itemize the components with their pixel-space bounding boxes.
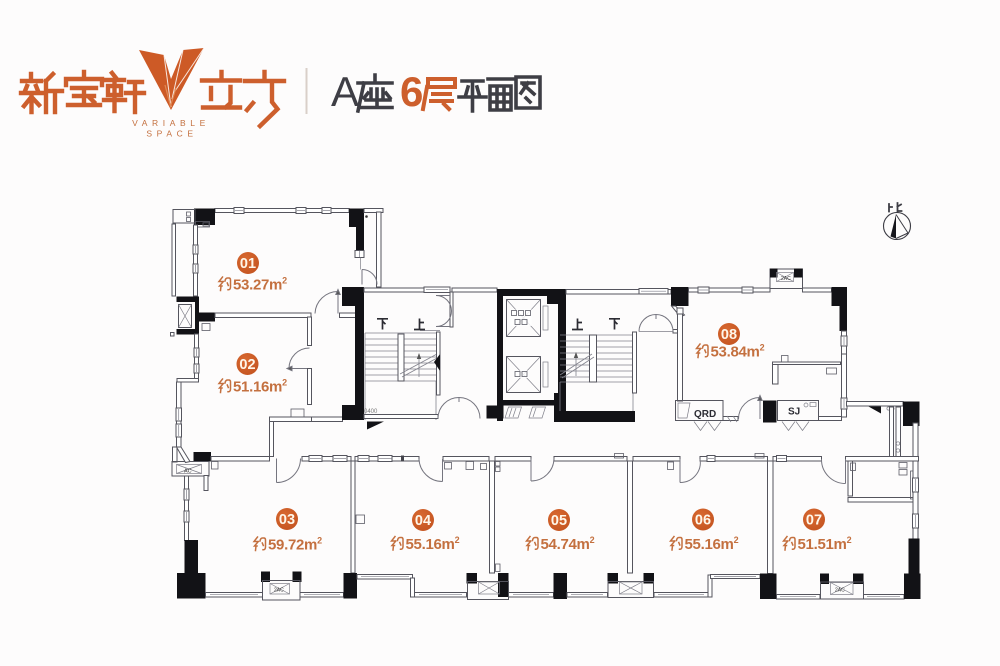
svg-text:02: 02 — [239, 357, 255, 373]
svg-text:QRD: QRD — [694, 409, 716, 420]
svg-text:07: 07 — [806, 513, 822, 529]
svg-text:SPACE: SPACE — [146, 129, 197, 139]
svg-text:05: 05 — [551, 513, 567, 529]
svg-text:06: 06 — [695, 513, 711, 529]
svg-text:01: 01 — [240, 256, 256, 272]
svg-text:2AC: 2AC — [781, 276, 791, 282]
svg-text:SJ: SJ — [788, 407, 800, 418]
svg-text:55.16m2: 55.16m2 — [406, 535, 460, 553]
svg-text:59.72m2: 59.72m2 — [268, 536, 322, 554]
svg-text:VARIABLE: VARIABLE — [132, 118, 210, 128]
svg-text:0400: 0400 — [364, 409, 378, 415]
svg-text:04: 04 — [415, 513, 431, 529]
svg-text:08: 08 — [721, 327, 737, 343]
svg-text:AC: AC — [184, 469, 192, 475]
svg-text:55.16m2: 55.16m2 — [685, 535, 739, 553]
svg-text:2AC: 2AC — [274, 588, 284, 594]
svg-text:54.74m2: 54.74m2 — [541, 535, 595, 553]
svg-text:53.84m2: 53.84m2 — [711, 343, 765, 361]
svg-text:53.27m2: 53.27m2 — [233, 276, 287, 294]
svg-text:A: A — [331, 68, 359, 115]
svg-text:51.16m2: 51.16m2 — [233, 378, 287, 396]
svg-text:51.51m2: 51.51m2 — [798, 535, 852, 553]
svg-text:2AC: 2AC — [835, 588, 845, 594]
svg-text:6: 6 — [400, 68, 423, 115]
svg-text:03: 03 — [279, 512, 295, 528]
